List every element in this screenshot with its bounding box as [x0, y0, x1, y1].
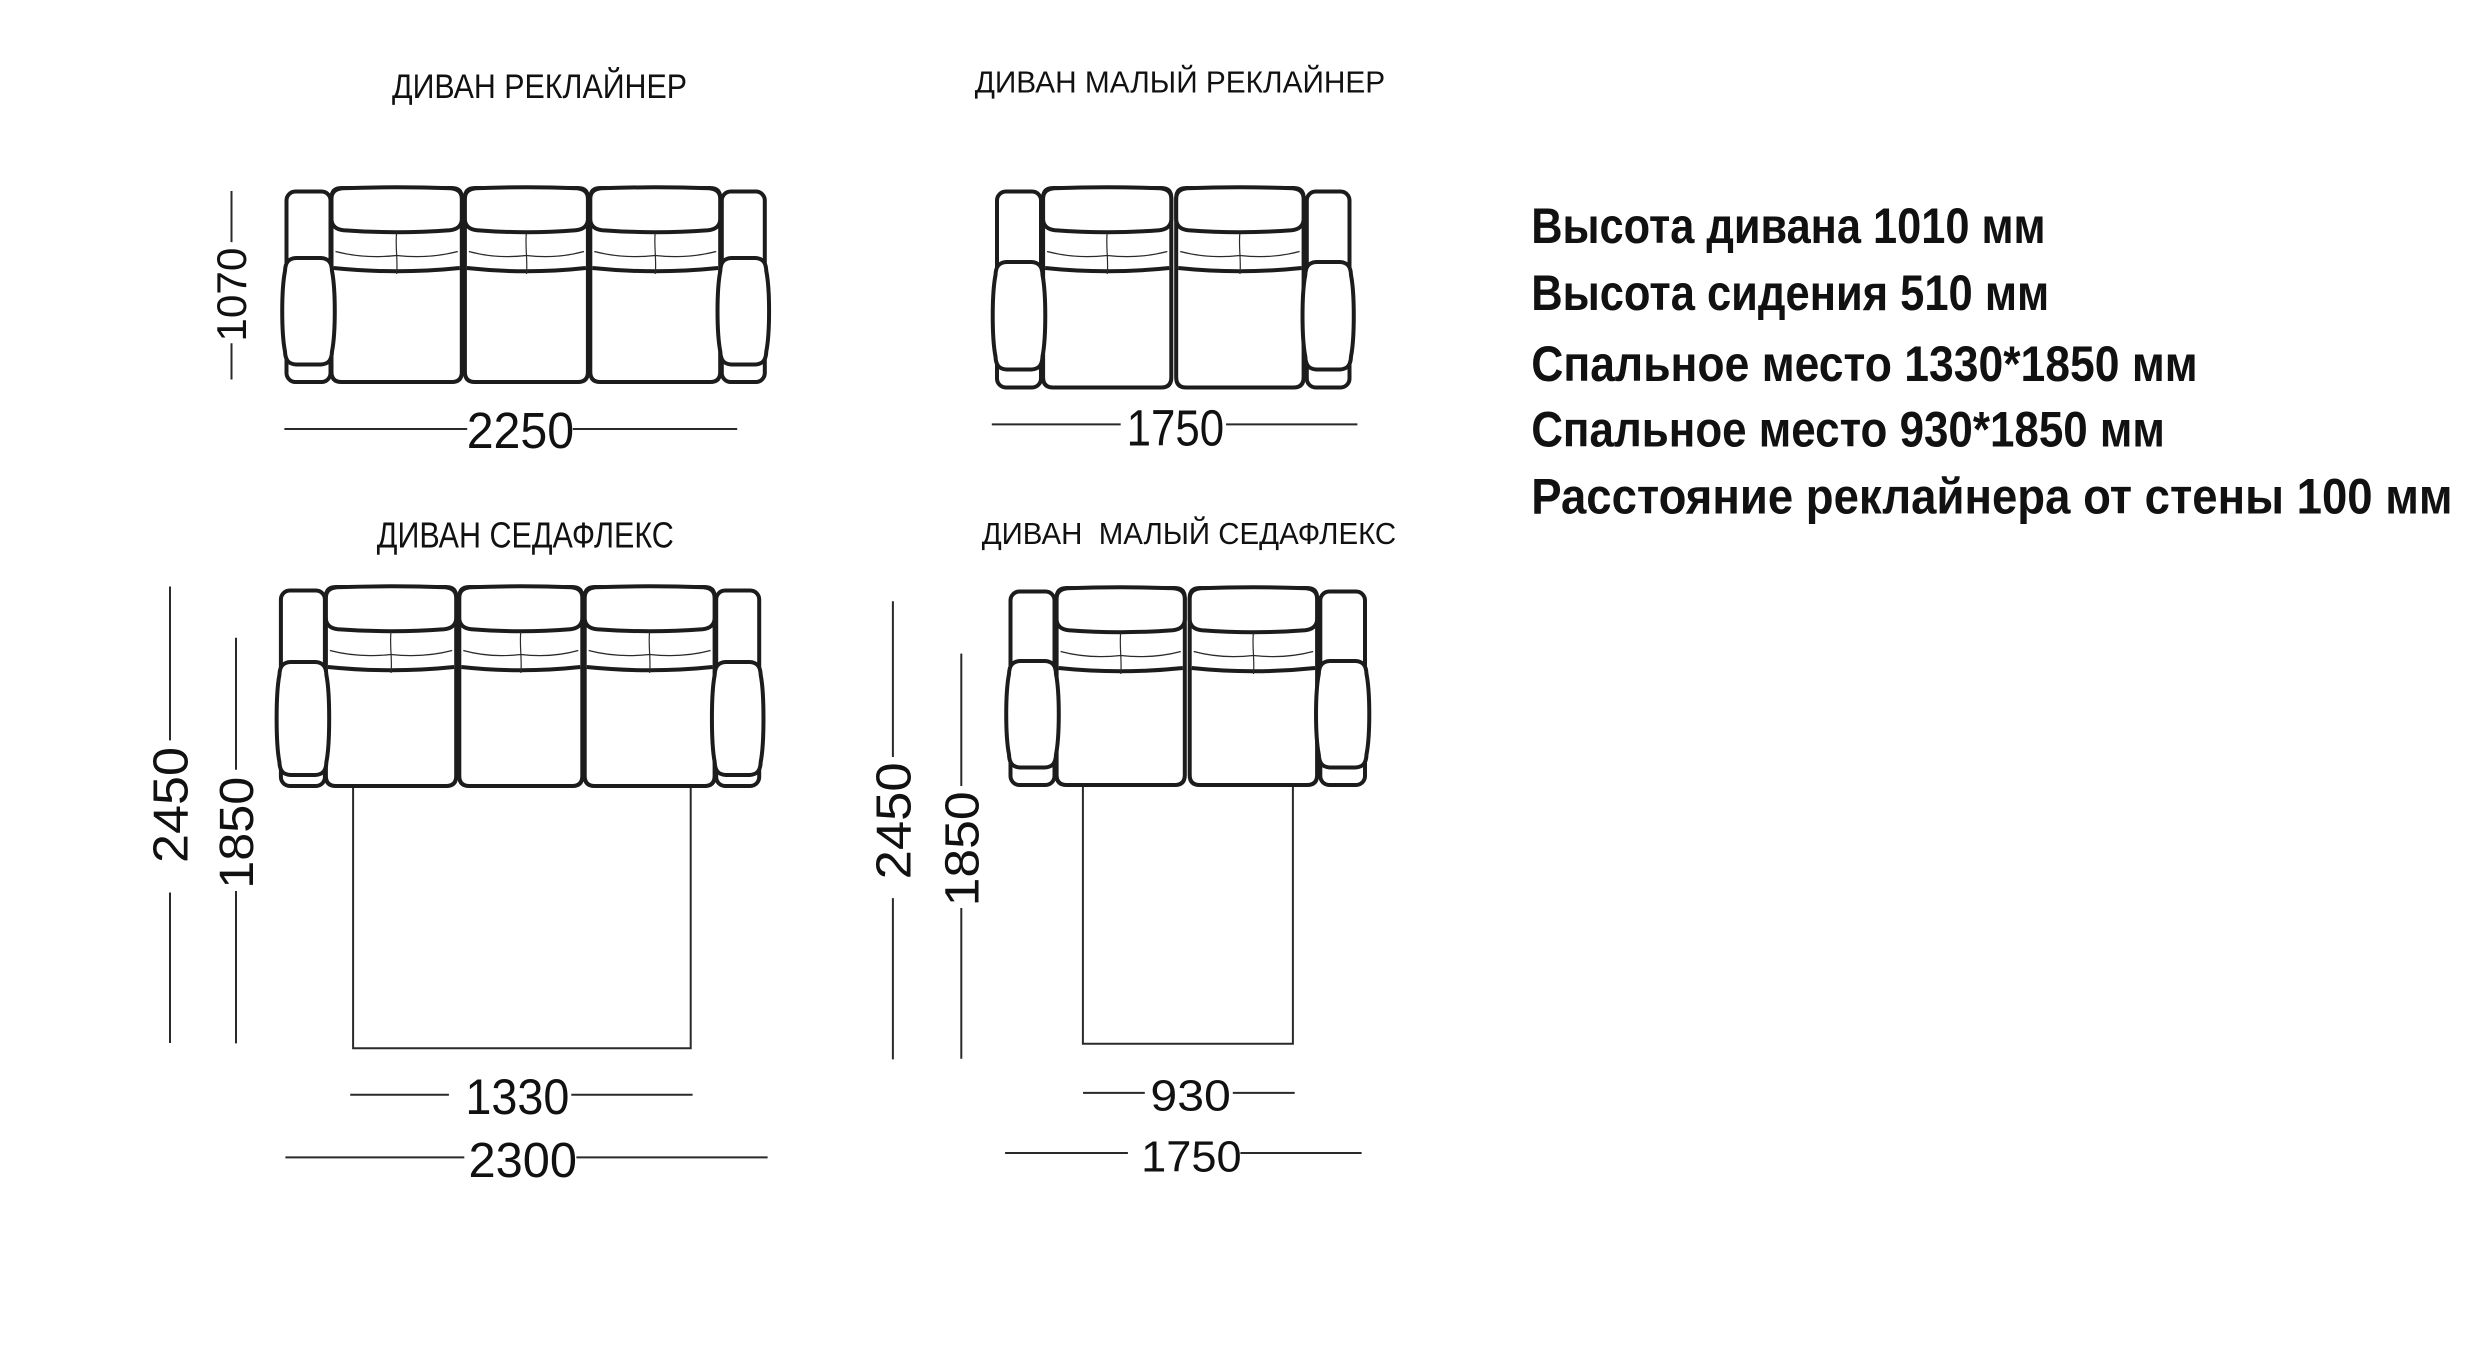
- svg-text:2250: 2250: [467, 402, 575, 459]
- svg-text:1750: 1750: [1141, 1133, 1242, 1182]
- svg-text:Высота сидения 510 мм: Высота сидения 510 мм: [1531, 264, 2049, 321]
- svg-text:1850: 1850: [211, 777, 264, 889]
- svg-text:Спальное место 930*1850 мм: Спальное место 930*1850 мм: [1531, 401, 2165, 458]
- svg-text:1070: 1070: [208, 248, 255, 342]
- svg-text:ДИВАН МАЛЫЙ РЕКЛАЙНЕР: ДИВАН МАЛЫЙ РЕКЛАЙНЕР: [975, 63, 1385, 99]
- svg-text:Расстояние реклайнера от стены: Расстояние реклайнера от стены 100 мм: [1531, 468, 2452, 525]
- svg-text:930: 930: [1150, 1072, 1231, 1121]
- svg-text:Спальное место 1330*1850 мм: Спальное место 1330*1850 мм: [1531, 335, 2198, 392]
- svg-text:ДИВАН СЕДАФЛЕКС: ДИВАН СЕДАФЛЕКС: [377, 514, 674, 555]
- svg-text:ДИВАН МАЛЫЙ СЕДАФЛЕКС: ДИВАН МАЛЫЙ СЕДАФЛЕКС: [982, 515, 1396, 551]
- svg-text:1330: 1330: [465, 1069, 569, 1125]
- svg-text:Высота дивана 1010 мм: Высота дивана 1010 мм: [1531, 197, 2045, 254]
- svg-text:2450: 2450: [144, 747, 198, 863]
- svg-text:1850: 1850: [936, 791, 989, 906]
- svg-text:2300: 2300: [469, 1134, 578, 1188]
- svg-text:ДИВАН РЕКЛАЙНЕР: ДИВАН РЕКЛАЙНЕР: [392, 68, 687, 106]
- svg-text:2450: 2450: [867, 762, 921, 879]
- svg-text:1750: 1750: [1127, 400, 1225, 457]
